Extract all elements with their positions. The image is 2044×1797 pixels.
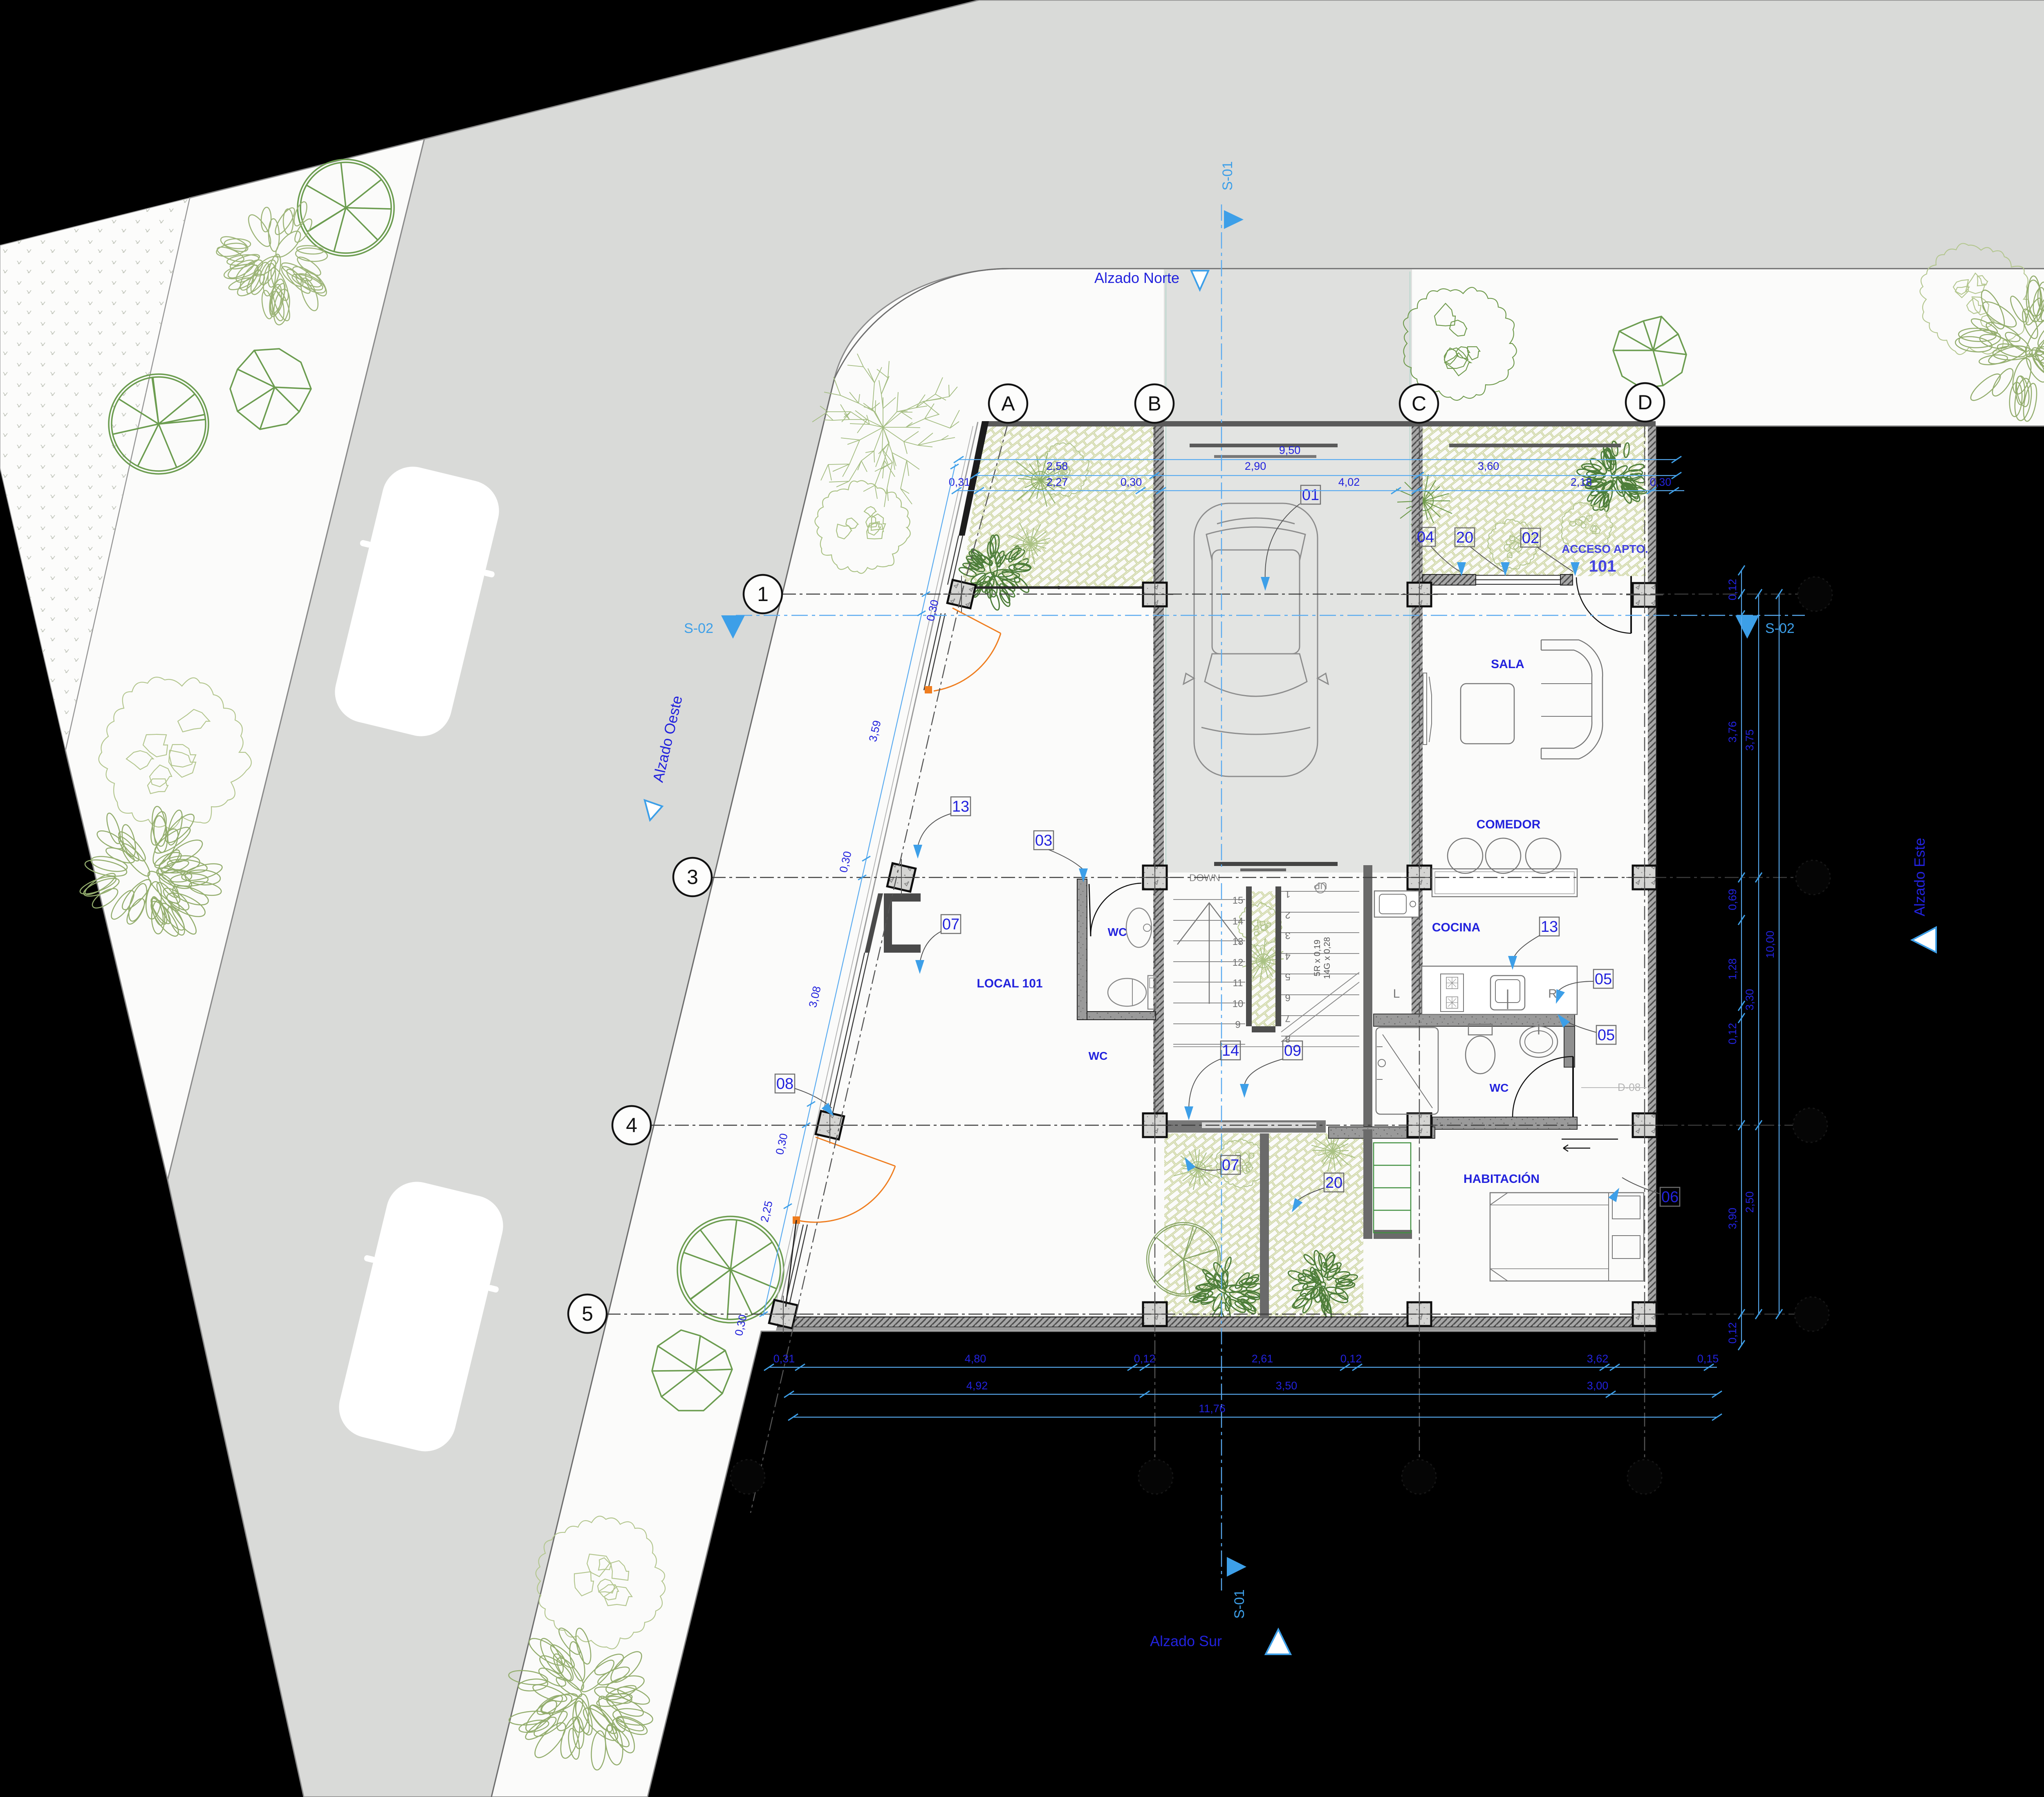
- svg-text:14: 14: [1222, 1042, 1239, 1059]
- svg-text:L: L: [1393, 987, 1400, 1001]
- svg-text:4,02: 4,02: [1338, 476, 1360, 488]
- svg-text:0,12: 0,12: [1726, 1023, 1739, 1045]
- svg-text:2: 2: [1285, 909, 1290, 920]
- svg-text:Alzado Este: Alzado Este: [1911, 838, 1928, 916]
- svg-text:03: 03: [1035, 832, 1052, 849]
- svg-text:3,30: 3,30: [1744, 989, 1756, 1011]
- svg-text:10,00: 10,00: [1764, 931, 1776, 958]
- svg-text:4: 4: [1285, 951, 1290, 962]
- svg-text:5R x 0,19: 5R x 0,19: [1313, 940, 1322, 976]
- svg-text:6: 6: [1285, 992, 1290, 1003]
- svg-text:01: 01: [1302, 487, 1319, 504]
- svg-text:DOWN: DOWN: [1189, 873, 1220, 884]
- svg-text:09: 09: [1284, 1042, 1301, 1059]
- svg-text:2,90: 2,90: [1245, 460, 1266, 472]
- svg-text:D: D: [1638, 391, 1652, 414]
- svg-text:15: 15: [1233, 895, 1244, 906]
- svg-text:12: 12: [1233, 957, 1244, 968]
- svg-text:D-08: D-08: [1618, 1081, 1641, 1093]
- svg-text:14: 14: [1233, 916, 1244, 927]
- svg-text:S-02: S-02: [684, 621, 713, 636]
- svg-text:9,50: 9,50: [1279, 444, 1301, 456]
- svg-text:3,50: 3,50: [1276, 1380, 1298, 1392]
- svg-text:14G x 0,28: 14G x 0,28: [1322, 937, 1332, 979]
- svg-text:2,58: 2,58: [1047, 460, 1068, 472]
- svg-text:1,28: 1,28: [1726, 958, 1739, 980]
- svg-text:11,76: 11,76: [1199, 1402, 1226, 1415]
- svg-text:B: B: [1148, 392, 1161, 415]
- svg-text:04: 04: [1417, 529, 1434, 546]
- svg-text:4,92: 4,92: [966, 1380, 988, 1392]
- svg-text:2,27: 2,27: [1047, 476, 1068, 488]
- svg-text:05: 05: [1595, 971, 1612, 988]
- svg-text:C: C: [1412, 392, 1426, 415]
- svg-text:3,00: 3,00: [1587, 1380, 1609, 1392]
- svg-text:08: 08: [776, 1075, 793, 1093]
- svg-text:1: 1: [757, 583, 769, 606]
- svg-text:COMEDOR: COMEDOR: [1477, 818, 1541, 831]
- svg-text:0,69: 0,69: [1726, 889, 1739, 911]
- svg-text:Alzado Norte: Alzado Norte: [1094, 269, 1179, 286]
- svg-text:9: 9: [1235, 1019, 1240, 1030]
- svg-text:Alzado Sur: Alzado Sur: [1150, 1633, 1222, 1649]
- svg-text:WC: WC: [1089, 1050, 1108, 1062]
- svg-text:ACCESO APTO.: ACCESO APTO.: [1562, 543, 1648, 555]
- svg-text:WC: WC: [1108, 926, 1127, 938]
- svg-text:5: 5: [1285, 971, 1290, 982]
- svg-text:05: 05: [1598, 1027, 1615, 1044]
- svg-text:20: 20: [1325, 1174, 1342, 1191]
- svg-text:2,50: 2,50: [1744, 1191, 1756, 1213]
- svg-text:S-02: S-02: [1765, 621, 1795, 636]
- svg-text:0,31: 0,31: [773, 1353, 795, 1365]
- svg-text:1: 1: [1285, 888, 1290, 900]
- svg-text:3,75: 3,75: [1744, 729, 1756, 751]
- svg-text:13: 13: [1233, 936, 1244, 947]
- svg-text:3,60: 3,60: [1478, 460, 1499, 472]
- svg-text:5: 5: [582, 1302, 593, 1325]
- svg-text:R: R: [1548, 987, 1557, 1001]
- svg-text:4: 4: [626, 1114, 637, 1137]
- svg-text:SALA: SALA: [1491, 657, 1524, 671]
- svg-text:0,30: 0,30: [1650, 476, 1672, 488]
- svg-text:HABITACIÓN: HABITACIÓN: [1464, 1172, 1540, 1186]
- svg-text:3,90: 3,90: [1726, 1208, 1739, 1229]
- svg-text:10: 10: [1233, 998, 1244, 1010]
- svg-text:13: 13: [1541, 918, 1558, 936]
- svg-text:2,61: 2,61: [1252, 1353, 1273, 1365]
- svg-text:A: A: [1001, 392, 1015, 415]
- svg-text:S-01: S-01: [1232, 1589, 1247, 1619]
- svg-text:101: 101: [1589, 557, 1616, 575]
- svg-text:07: 07: [942, 916, 959, 933]
- svg-text:S-01: S-01: [1220, 161, 1235, 191]
- svg-text:WC: WC: [1490, 1081, 1509, 1094]
- svg-text:07: 07: [1222, 1157, 1239, 1174]
- svg-text:0,15: 0,15: [1697, 1353, 1719, 1365]
- svg-text:0,12: 0,12: [1726, 579, 1739, 601]
- svg-text:3,76: 3,76: [1726, 721, 1739, 743]
- svg-text:0,30: 0,30: [1121, 476, 1142, 488]
- svg-text:3,62: 3,62: [1587, 1353, 1609, 1365]
- svg-text:3: 3: [1285, 930, 1290, 941]
- svg-text:COCINA: COCINA: [1432, 921, 1480, 934]
- svg-text:20: 20: [1456, 529, 1473, 546]
- svg-text:0,12: 0,12: [1134, 1353, 1156, 1365]
- svg-text:02: 02: [1522, 529, 1539, 547]
- svg-text:4,80: 4,80: [965, 1353, 986, 1365]
- svg-text:0,12: 0,12: [1340, 1353, 1362, 1365]
- svg-text:0,12: 0,12: [1726, 1322, 1739, 1344]
- svg-text:2,18: 2,18: [1571, 476, 1592, 488]
- svg-text:06: 06: [1661, 1189, 1679, 1206]
- svg-text:11: 11: [1233, 978, 1243, 989]
- svg-text:3: 3: [687, 866, 698, 888]
- svg-text:13: 13: [952, 798, 969, 815]
- svg-text:LOCAL 101: LOCAL 101: [977, 977, 1042, 990]
- svg-text:7: 7: [1285, 1013, 1290, 1024]
